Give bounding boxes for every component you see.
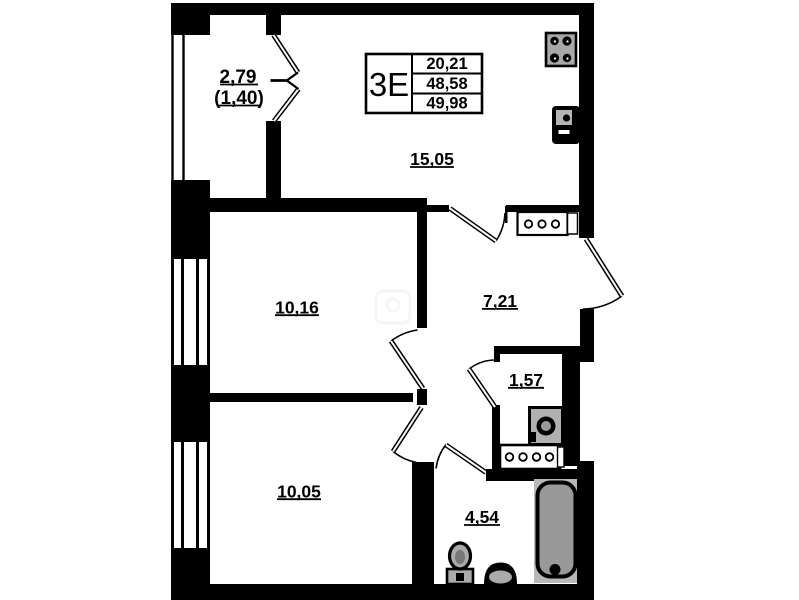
svg-text:49,98: 49,98: [426, 95, 467, 113]
svg-text:4,54: 4,54: [465, 507, 499, 527]
svg-text:15,05: 15,05: [410, 149, 454, 169]
svg-text:3Е: 3Е: [369, 66, 409, 103]
svg-text:48,58: 48,58: [426, 75, 467, 93]
svg-text:20,21: 20,21: [426, 55, 467, 73]
